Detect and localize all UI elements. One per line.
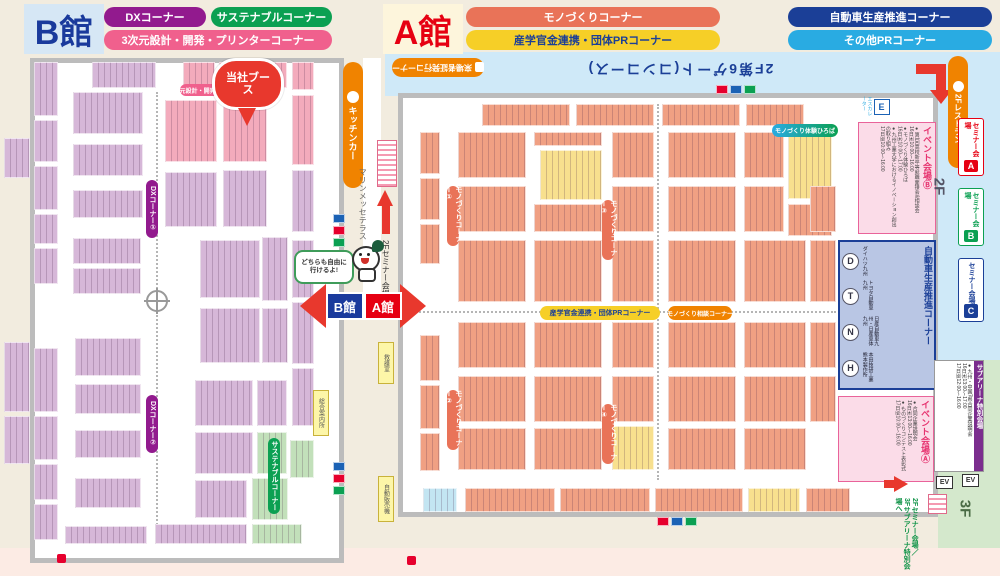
booth — [73, 238, 141, 264]
seminar-room-b: セミナー会場 B — [958, 188, 984, 246]
mono-corner-4-label: モノづくりコーナー④ — [598, 404, 618, 464]
legend-auto-label: 自動車生産推進コーナー — [830, 9, 951, 25]
booth — [668, 376, 736, 422]
sangaku-strip: 産学官金連携・団体PRコーナー — [540, 306, 660, 320]
amenity-icon — [333, 486, 345, 495]
sustainable-corner-label: サステナブルコーナー — [269, 441, 279, 511]
booth — [200, 240, 260, 298]
arrow-hall-a-label: A館 — [372, 297, 394, 316]
booth — [34, 416, 58, 460]
subarena-box: ●九州・中国7県合同企業説明会 16日㈭13:00〜17:00 17日㈮12:0… — [934, 360, 984, 472]
event-hall-a-box: イベント会場Ⓐ ●合同企業説明会 16日㈭13:00〜16:00 ●ものづくりコ… — [838, 396, 934, 482]
nissan-name: 日産自動車九州・日産車体九州 — [861, 316, 878, 348]
mono-corner-1-label: モノづくりコーナー① — [443, 186, 463, 246]
gate-note: 2F第6ゲート(コンコース) — [540, 58, 820, 80]
booth — [34, 248, 58, 284]
booth — [534, 240, 602, 302]
escalator-box: エスカレーター E — [860, 96, 892, 118]
orange-strip: モノづくり相談コーナー — [668, 306, 732, 320]
amenity-icon — [671, 517, 683, 526]
escalator-label: エスカレーター — [860, 96, 872, 118]
rescue-tag-label: 救護室 — [382, 354, 391, 372]
booth — [262, 237, 288, 301]
booth — [744, 132, 784, 178]
legend-other-pr-label: その他PRコーナー — [844, 32, 936, 48]
dx-corner-1-pill: DXコーナー① — [146, 180, 158, 238]
seminar-room-c: セミナー会場 C — [958, 258, 984, 322]
booth — [668, 186, 736, 232]
mono-corner-1-pill: モノづくりコーナー① — [447, 186, 459, 246]
nissan-logo: N — [842, 324, 859, 341]
amenity-icon — [333, 214, 345, 223]
teal-strip: モノづくり体験ひろば — [772, 124, 838, 137]
kitchen-car-label: キッチンカー — [347, 106, 360, 160]
booth — [458, 322, 526, 368]
hall-a-title: A館 — [394, 5, 453, 54]
hall-a-aisle-v — [657, 104, 659, 480]
booth — [458, 428, 526, 470]
booth — [34, 348, 58, 412]
booth — [465, 488, 555, 512]
legend-mono: モノづくりコーナー — [466, 7, 720, 27]
booth — [34, 464, 58, 500]
booth — [458, 240, 526, 302]
subarena-title: サブアリーナ特別会場 — [974, 361, 983, 471]
booth — [612, 376, 654, 422]
booth — [576, 104, 654, 126]
booth — [195, 480, 247, 518]
booth — [540, 150, 602, 200]
legend-mono-label: モノづくりコーナー — [544, 9, 643, 25]
booth — [420, 385, 440, 429]
mono-corner-3-pill: モノづくりコーナー③ — [602, 200, 614, 260]
amenity-icon — [333, 226, 345, 235]
subarena-lines: ●九州・中国7県合同企業説明会 16日㈭13:00〜17:00 17日㈮12:0… — [935, 361, 974, 471]
info-desk-label: 総合案内所 — [317, 398, 326, 428]
mono-corner-2-pill: モノづくりコーナー② — [447, 390, 459, 450]
aed-marker-icon — [407, 556, 416, 565]
floor3-label: 3F — [956, 500, 973, 518]
orange-strip-label: モノづくり相談コーナー — [667, 309, 733, 318]
mascot-speech-bubble: どちらも自由に行けるよ! — [294, 250, 354, 284]
booth — [73, 190, 143, 218]
restaurant-icon — [953, 81, 964, 92]
seminar-room-a-label: セミナー会場 — [963, 122, 979, 160]
arrow-hall-a-badge: A館 — [364, 292, 402, 320]
booth — [420, 224, 440, 264]
hall-b-title: B館 — [35, 5, 94, 54]
hall-b-title-box: B館 — [24, 4, 104, 54]
event-hall-a-title: イベント会場Ⓐ — [920, 400, 930, 478]
dx-corner-2-pill: DXコーナー② — [146, 395, 158, 453]
legend-sangaku-label: 産学官金連携・団体PRコーナー — [514, 32, 672, 48]
booth — [746, 104, 804, 126]
floor2-label: 2F — [930, 178, 947, 196]
booth — [75, 384, 141, 414]
booth — [810, 376, 836, 422]
booth — [810, 240, 836, 302]
seminar-room-a: セミナー会場 A — [958, 118, 984, 176]
event-hall-b-lines: ●第1回高校新卒等就職面接会&相談会 16日㈭10:00〜16:00 ●モノづく… — [878, 126, 918, 230]
booth — [744, 428, 806, 470]
booth — [290, 440, 314, 478]
auto-corner-title: 自動車生産推進コーナー — [922, 242, 934, 388]
booth — [4, 138, 30, 178]
mascot — [350, 240, 386, 280]
booth — [612, 426, 654, 470]
amenity-icon — [657, 517, 669, 526]
booth — [810, 322, 836, 368]
booth — [420, 433, 440, 471]
our-booth-pin: 当社ブース — [212, 58, 282, 128]
event-hall-b-box: イベント会場Ⓑ ●第1回高校新卒等就職面接会&相談会 16日㈭10:00〜16:… — [858, 122, 936, 234]
auto-corner-box: Dダイハツ九州 Tトヨタ自動車九州 N日産自動車九州・日産車体九州 H本田技研工… — [838, 240, 936, 390]
rescue-tag: 救護室 — [378, 342, 394, 384]
booth — [34, 166, 58, 210]
toyota-logo: T — [842, 288, 859, 305]
seminar-room-a-letter: A — [964, 160, 978, 173]
legend-sustainable-label: サステナブルコーナー — [217, 9, 327, 25]
booth — [612, 240, 654, 302]
legend-dx-label: DXコーナー — [125, 9, 184, 25]
booth — [34, 62, 58, 116]
booth — [744, 376, 806, 422]
daihatsu-logo: D — [842, 253, 859, 270]
ev-box-2: EV — [962, 474, 979, 487]
mono-corner-3-label: モノづくりコーナー③ — [598, 200, 618, 260]
terrace-label: マリンメッセテラス — [358, 168, 367, 240]
booth — [423, 488, 457, 512]
booth — [534, 322, 602, 368]
booth — [292, 62, 314, 90]
booth — [744, 240, 806, 302]
booth — [65, 526, 147, 544]
amenity-icon — [333, 474, 345, 483]
booth — [4, 416, 30, 464]
mono-corner-4-pill: モノづくりコーナー④ — [602, 404, 614, 464]
booth — [257, 380, 287, 426]
booth — [662, 104, 740, 126]
amenity-icon — [685, 517, 697, 526]
legend-auto: 自動車生産推進コーナー — [788, 7, 992, 27]
amenity-icon — [744, 85, 756, 94]
visitor-badge-pill: 来場者証発行コーナー — [392, 58, 484, 77]
booth — [165, 172, 217, 227]
event-hall-a-lines: ●合同企業説明会 16日㈭13:00〜16:00 ●ものづくりコンテスト表彰式 … — [894, 400, 917, 478]
booth — [252, 524, 302, 544]
booth — [420, 132, 440, 174]
seminar-room-c-label: セミナー会場 — [967, 262, 975, 304]
honda-logo: H — [842, 360, 859, 377]
booth — [668, 322, 736, 368]
booth — [195, 380, 253, 426]
booth — [458, 132, 526, 178]
booth — [810, 186, 836, 232]
hall-link-arrow: B館 A館 — [300, 284, 426, 328]
legend-3d: 3次元設計・開発・プリンターコーナー — [104, 30, 332, 50]
dx-corner-2-label: DXコーナー② — [147, 401, 157, 447]
legend-3d-label: 3次元設計・開発・プリンターコーナー — [121, 32, 314, 48]
legend-sustainable: サステナブルコーナー — [211, 7, 332, 27]
booth — [92, 62, 156, 88]
booth — [534, 428, 602, 470]
booth — [560, 488, 650, 512]
booth — [75, 430, 141, 458]
booth — [155, 524, 247, 544]
booth — [612, 132, 654, 178]
info-desk-tag: 総合案内所 — [313, 390, 329, 436]
aed-marker-icon — [57, 554, 66, 563]
to-3f-label: 2Fセミナー会場／ 3Fサブアリーナ特別会場へ — [894, 498, 918, 576]
ev-box-1: EV — [936, 476, 953, 489]
mascot-speech-text: どちらも自由に行けるよ! — [300, 259, 348, 275]
up-arrow-2f — [376, 190, 394, 236]
seminar-room-b-letter: B — [964, 230, 978, 243]
booth — [75, 478, 141, 508]
hall-a-title-box: A館 — [383, 4, 463, 54]
ev-arrow — [884, 476, 910, 492]
booth — [806, 488, 850, 512]
booth — [34, 504, 58, 540]
booth — [223, 170, 267, 227]
booth — [534, 204, 602, 232]
kitchen-car-icon — [347, 91, 359, 103]
mono-corner-2-label: モノづくりコーナー② — [443, 390, 463, 450]
seminar-room-c-letter: C — [964, 304, 978, 318]
booth — [668, 428, 736, 470]
booth — [34, 120, 58, 162]
booth — [75, 338, 141, 376]
booth — [73, 92, 143, 134]
vending-tag-label: 自動販売機 — [382, 484, 391, 514]
legend-sangaku: 産学官金連携・団体PRコーナー — [466, 30, 720, 50]
toyota-name: トヨタ自動車九州 — [861, 280, 873, 312]
legend-dx: DXコーナー — [104, 7, 206, 27]
booth — [292, 170, 314, 232]
booth — [744, 186, 784, 232]
dx-corner-1-label: DXコーナー① — [147, 186, 157, 232]
daihatsu-name: ダイハツ九州 — [861, 246, 867, 276]
booth — [458, 186, 526, 232]
stairs-icon-mid — [377, 140, 397, 187]
booth — [195, 432, 253, 474]
amenity-icon — [333, 462, 345, 471]
booth — [458, 376, 526, 422]
booth — [73, 268, 141, 294]
badge-icon — [475, 63, 484, 73]
amenity-icon — [730, 85, 742, 94]
hall-b-aisle — [156, 92, 158, 544]
booth — [292, 95, 314, 165]
visitor-badge-label: 来場者証発行コーナー — [392, 62, 472, 73]
booth — [420, 335, 440, 381]
booth — [668, 132, 736, 178]
booth — [482, 104, 570, 126]
arrow-hall-b-label: B館 — [334, 297, 356, 316]
vending-tag: 自動販売機 — [378, 476, 394, 522]
our-booth-pin-label: 当社ブース — [226, 72, 270, 96]
booth — [612, 322, 654, 368]
stairs-icon-ev — [928, 494, 947, 514]
arrow-hall-b-badge: B館 — [326, 292, 364, 320]
booth — [4, 342, 30, 412]
booth — [534, 132, 602, 146]
sustainable-corner-pill: サステナブルコーナー — [268, 438, 280, 514]
booth — [73, 144, 143, 176]
booth — [200, 308, 260, 363]
booth — [420, 178, 440, 220]
booth — [165, 100, 217, 162]
compass-icon — [146, 290, 168, 312]
seminar-room-b-label: セミナー会場 — [963, 192, 979, 230]
floor-map: B館 DXコーナー サステナブルコーナー 3次元設計・開発・プリンターコーナー … — [0, 0, 1000, 576]
legend-other-pr: その他PRコーナー — [788, 30, 992, 50]
amenity-icon — [333, 238, 345, 247]
escalator-letter: E — [874, 99, 890, 115]
booth — [668, 240, 736, 302]
booth — [262, 308, 288, 363]
gate-note-label: 2F第6ゲート(コンコース) — [587, 59, 774, 79]
booth — [534, 376, 602, 422]
booth — [612, 186, 654, 232]
teal-strip-label: モノづくり体験ひろば — [775, 126, 835, 135]
booth — [292, 368, 314, 426]
sangaku-strip-label: 産学官金連携・団体PRコーナー — [550, 308, 651, 318]
booth — [744, 322, 806, 368]
booth — [34, 214, 58, 244]
booth — [655, 488, 743, 512]
amenity-icon — [716, 85, 728, 94]
honda-name: 本田技研工業 熊本製作所 — [861, 352, 873, 384]
booth — [748, 488, 800, 512]
